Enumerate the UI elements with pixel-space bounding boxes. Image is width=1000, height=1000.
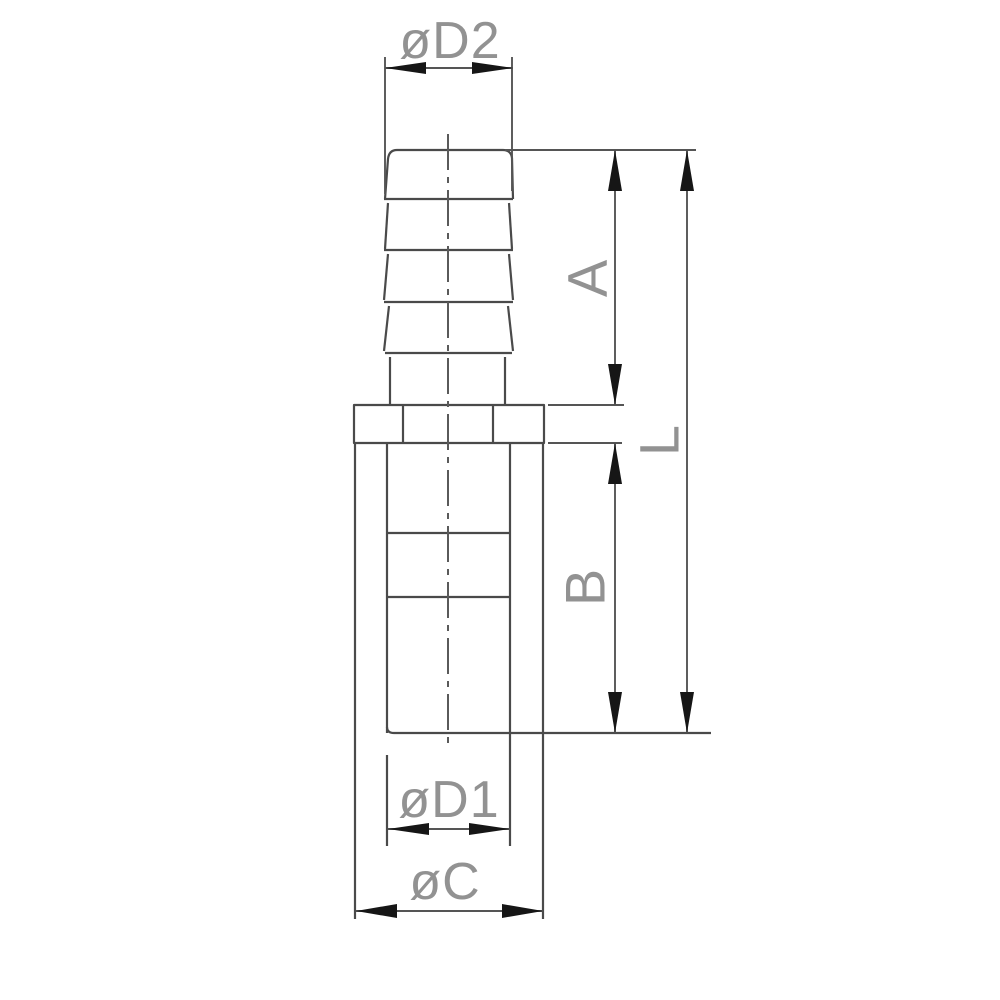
barb-segment-2-left: [385, 203, 388, 249]
a-arrowhead-top: [608, 150, 622, 191]
dim-label-c: øC: [409, 853, 480, 911]
dimension-a: A: [548, 150, 624, 405]
barb-segment-4-right: [508, 306, 513, 351]
barb-segment-4-left: [384, 306, 389, 351]
dim-label-b: B: [554, 568, 617, 606]
dimension-d1: øD1: [388, 771, 510, 835]
barb-segment-3-right: [509, 254, 513, 300]
c-arrowhead-left: [356, 904, 397, 918]
dim-label-l: L: [628, 424, 691, 456]
l-arrowhead-bottom: [680, 692, 694, 733]
hose-barb-fitting-drawing: øD2 A B L: [0, 0, 1000, 1000]
b-arrowhead-bottom: [608, 692, 622, 733]
dimension-c: øC: [356, 853, 543, 918]
dimension-l: L: [628, 150, 694, 733]
dim-label-d2: øD2: [399, 12, 500, 70]
barb-segment-2-right: [509, 203, 512, 249]
dim-label-a: A: [556, 259, 619, 297]
dimension-b: B: [548, 443, 622, 733]
a-arrowhead-bottom: [608, 364, 622, 405]
barb-segment-3-left: [384, 254, 388, 300]
l-arrowhead-top: [680, 150, 694, 191]
c-arrowhead-right: [502, 904, 543, 918]
technical-drawing-page: øD2 A B L: [0, 0, 1000, 1000]
b-arrowhead-top: [608, 443, 622, 484]
bottom-face-line: [387, 727, 711, 733]
dim-label-d1: øD1: [398, 771, 499, 829]
